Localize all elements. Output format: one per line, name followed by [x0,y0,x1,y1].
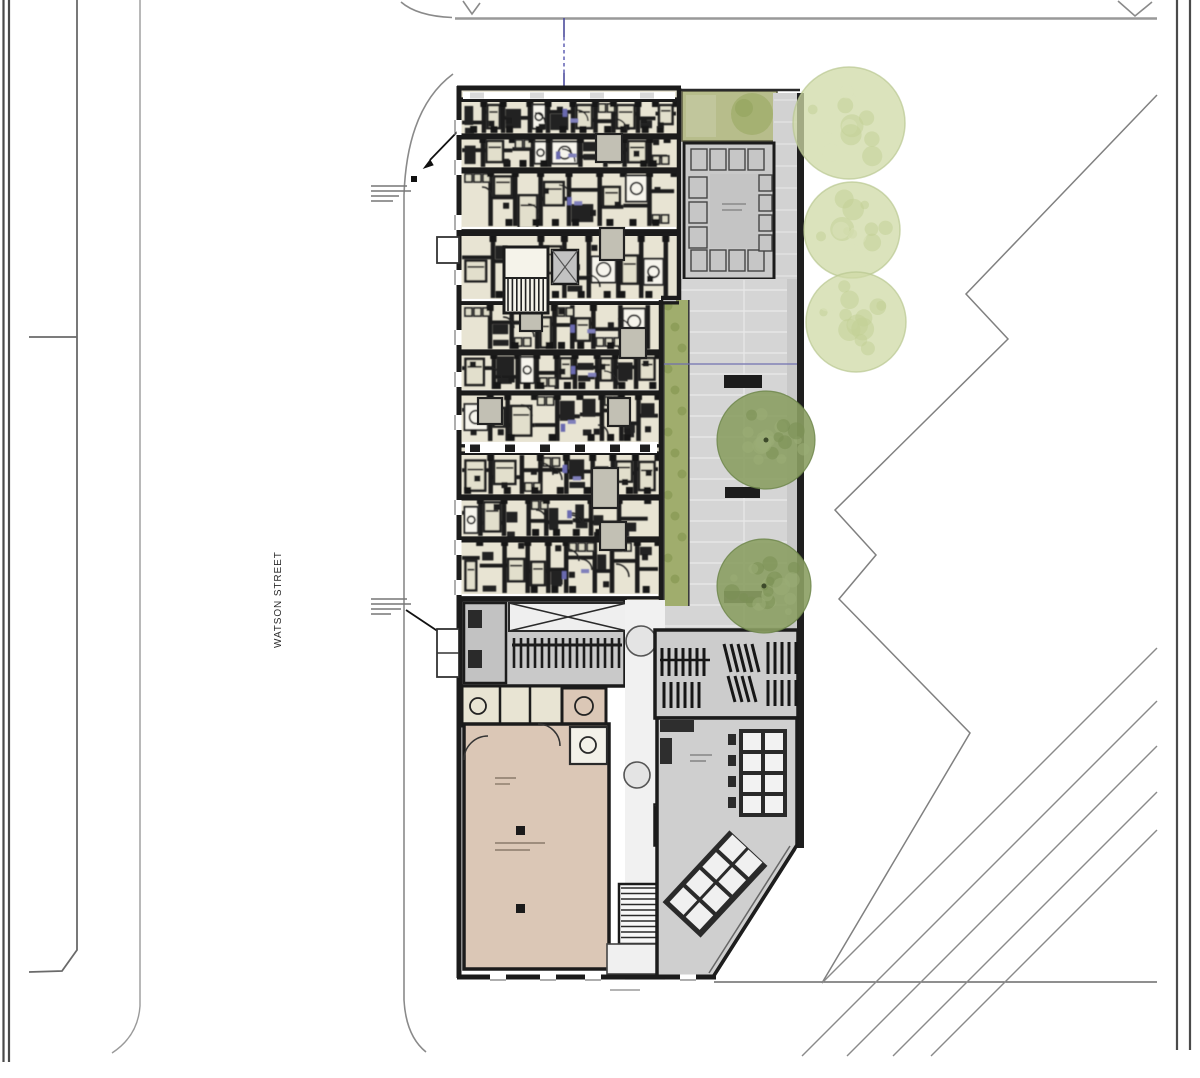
svg-text:WATSON STREET: WATSON STREET [273,551,284,648]
